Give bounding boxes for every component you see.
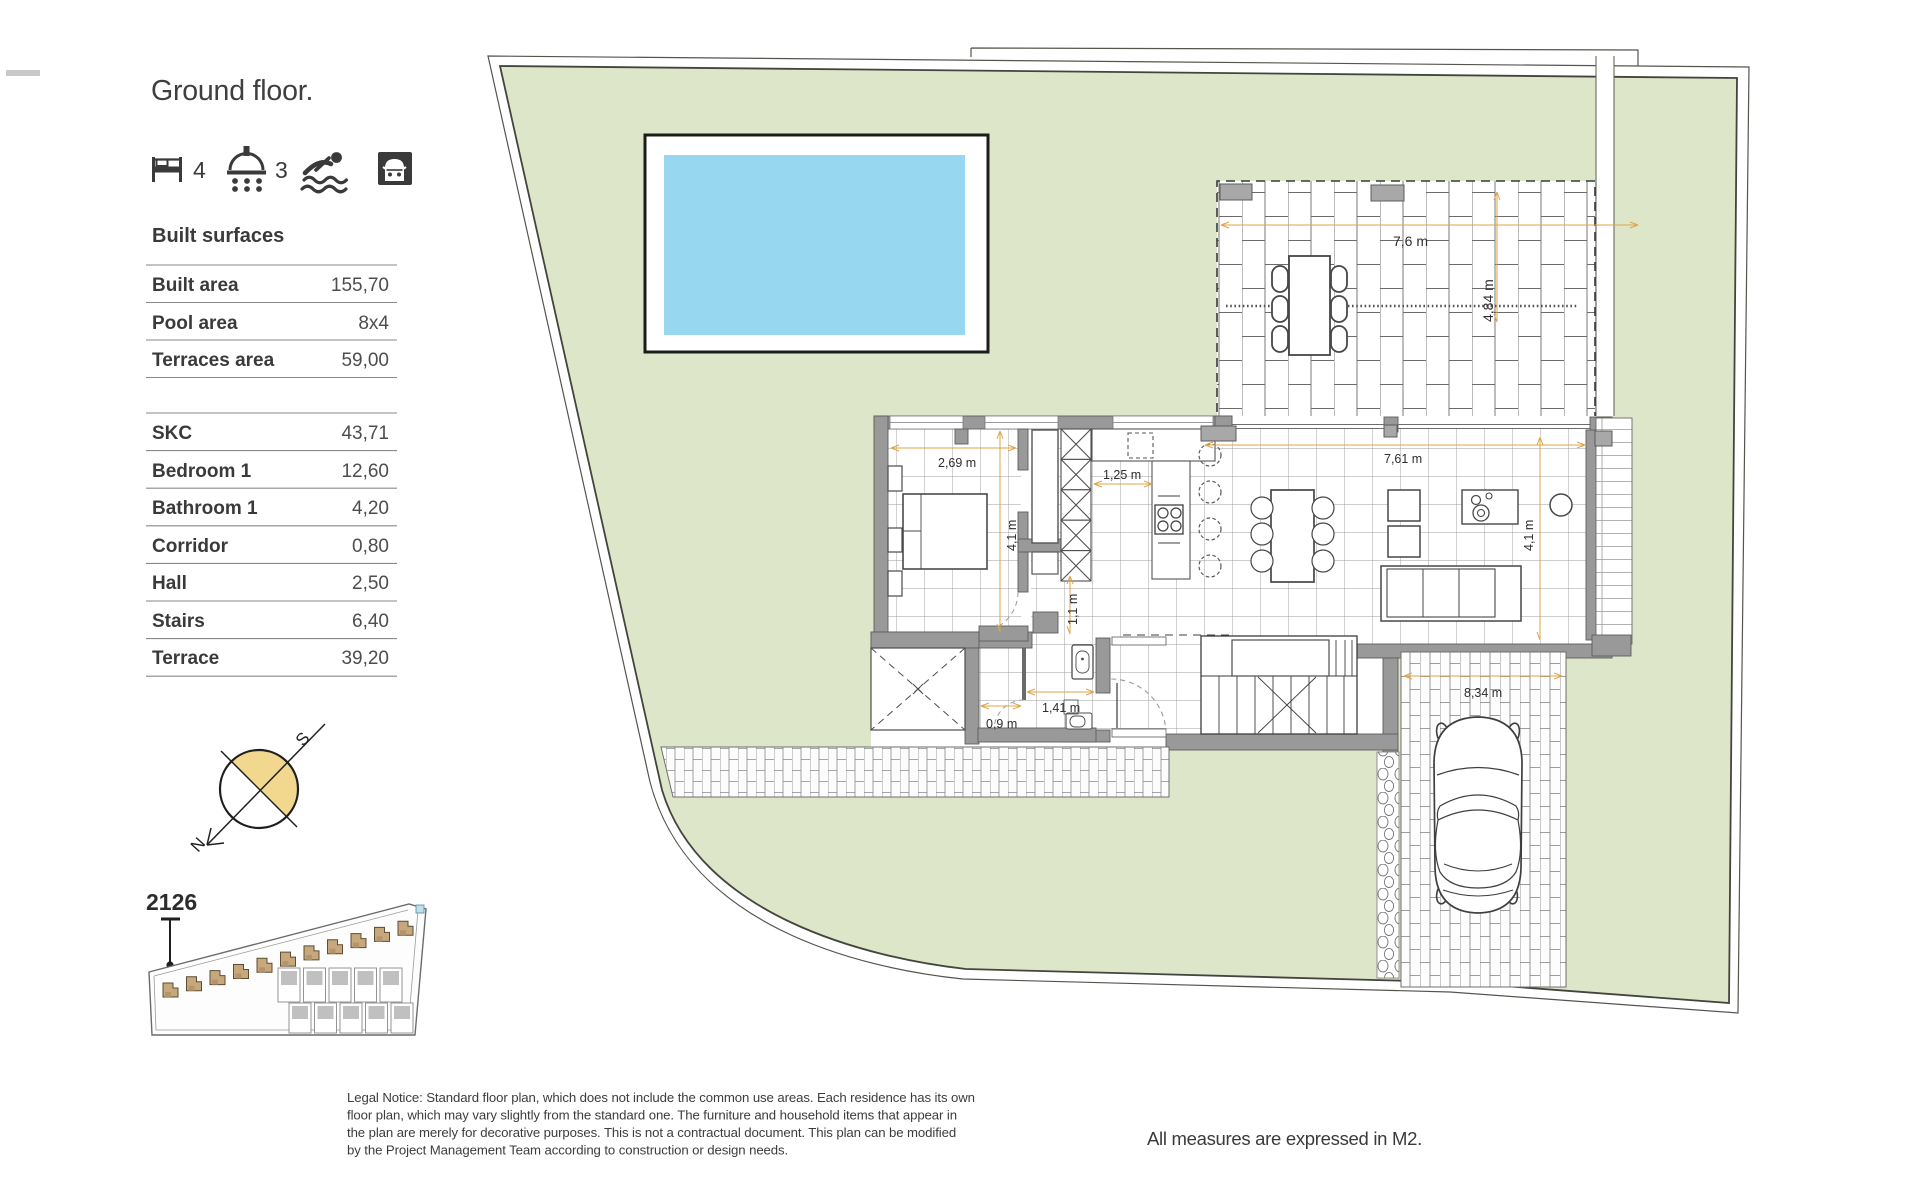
svg-text:2,50: 2,50	[352, 573, 389, 594]
svg-text:Legal Notice: Standard floor p: Legal Notice: Standard floor plan, which…	[347, 1090, 975, 1105]
svg-text:Pool area: Pool area	[152, 313, 238, 334]
svg-text:7,6 m: 7,6 m	[1393, 233, 1428, 249]
svg-text:2,69 m: 2,69 m	[938, 456, 976, 470]
svg-text:59,00: 59,00	[341, 350, 389, 371]
svg-text:1,1 m: 1,1 m	[1066, 594, 1080, 625]
svg-text:Terrace: Terrace	[152, 648, 219, 669]
svg-text:8,34 m: 8,34 m	[1464, 686, 1502, 700]
svg-text:Stairs: Stairs	[152, 611, 205, 632]
svg-text:2126: 2126	[146, 889, 197, 915]
svg-text:Ground floor.: Ground floor.	[151, 75, 313, 107]
svg-text:155,70: 155,70	[331, 275, 389, 296]
svg-text:12,60: 12,60	[341, 461, 389, 482]
svg-text:4,84 m: 4,84 m	[1480, 279, 1496, 322]
svg-text:0,9 m: 0,9 m	[986, 717, 1017, 731]
svg-text:SKC: SKC	[152, 423, 192, 444]
svg-text:1,41 m: 1,41 m	[1042, 701, 1080, 715]
svg-text:4,1 m: 4,1 m	[1005, 520, 1019, 551]
svg-text:Hall: Hall	[152, 573, 187, 594]
svg-text:the plan are merely for decora: the plan are merely for decorative purpo…	[347, 1125, 956, 1140]
svg-text:floor plan, which may vary sli: floor plan, which may vary slightly from…	[347, 1108, 957, 1123]
svg-text:4: 4	[193, 157, 206, 183]
svg-text:8x4: 8x4	[358, 313, 389, 334]
svg-text:Corridor: Corridor	[152, 536, 229, 557]
svg-text:All measures are expressed in: All measures are expressed in M2.	[1147, 1128, 1422, 1149]
svg-text:39,20: 39,20	[341, 648, 389, 669]
svg-text:3: 3	[275, 157, 288, 183]
svg-text:0,80: 0,80	[352, 536, 389, 557]
svg-text:Bedroom 1: Bedroom 1	[152, 461, 252, 482]
svg-text:1,25 m: 1,25 m	[1103, 468, 1141, 482]
svg-text:Built area: Built area	[152, 275, 239, 296]
svg-text:Terraces area: Terraces area	[152, 350, 275, 371]
svg-text:4,20: 4,20	[352, 498, 389, 519]
svg-text:43,71: 43,71	[341, 423, 389, 444]
svg-text:4,1 m: 4,1 m	[1522, 520, 1536, 551]
svg-text:Bathroom 1: Bathroom 1	[152, 498, 258, 519]
svg-text:by the Project Management Team: by the Project Management Team according…	[347, 1143, 788, 1158]
svg-text:Built surfaces: Built surfaces	[152, 225, 284, 247]
svg-text:7,61 m: 7,61 m	[1384, 452, 1422, 466]
svg-text:6,40: 6,40	[352, 611, 389, 632]
